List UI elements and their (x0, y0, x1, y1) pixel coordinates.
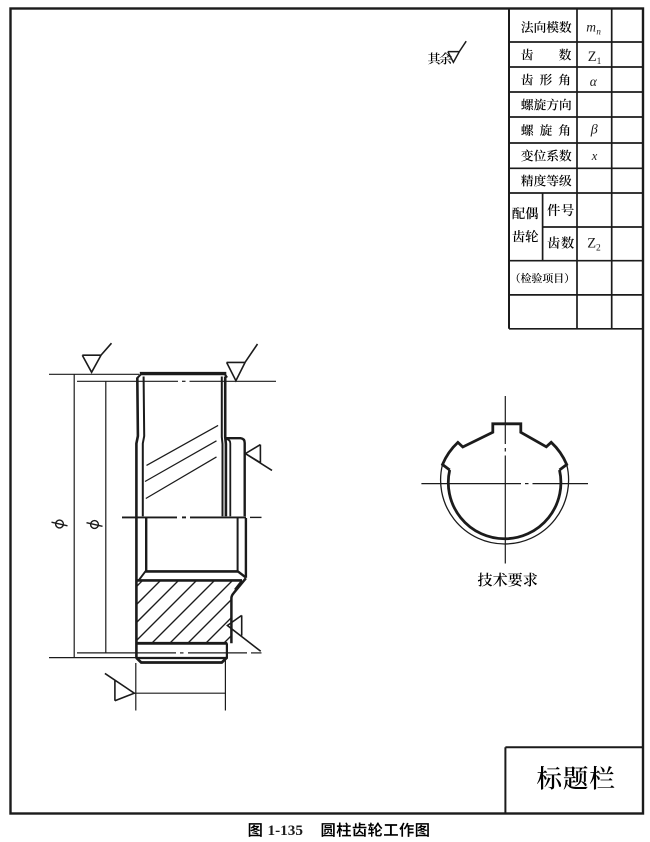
svg-text:α: α (590, 74, 598, 89)
svg-text:x: x (591, 149, 598, 163)
svg-text:Z2: Z2 (587, 236, 601, 254)
svg-text:1-135: 1-135 (268, 822, 304, 839)
svg-text:β: β (590, 123, 598, 138)
svg-text:Z1: Z1 (588, 49, 602, 67)
svg-text:mn: mn (586, 20, 601, 37)
